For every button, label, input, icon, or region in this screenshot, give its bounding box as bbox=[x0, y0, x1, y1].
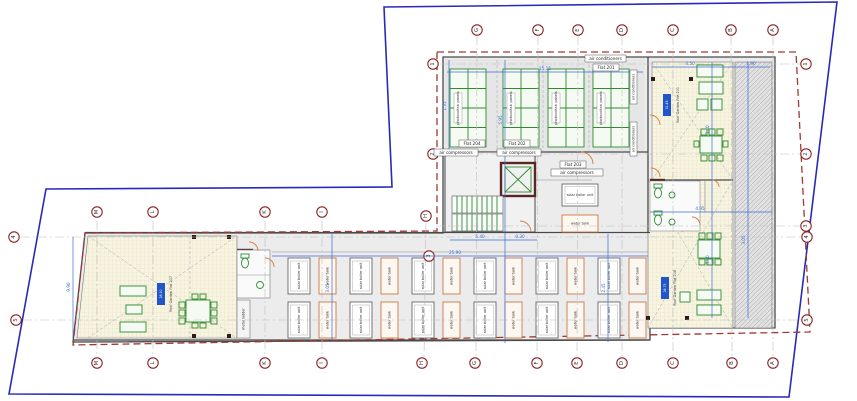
roof-garden-br-name: Roof Garden Flat 208 bbox=[673, 270, 677, 306]
grid-col-B-bottom: B bbox=[729, 361, 735, 365]
grid-col-D-bottom: D bbox=[619, 361, 625, 365]
grid-col-C-bottom: C bbox=[670, 361, 676, 365]
grid-col-H-bottom: H bbox=[419, 361, 425, 365]
dim-v-strip: 3.05 bbox=[741, 235, 746, 245]
dim-v-core: 5.95 bbox=[498, 115, 503, 125]
grid-col-L-bottom: L bbox=[150, 361, 156, 364]
grid-col-F-bottom: F bbox=[534, 361, 540, 364]
svg-text:28.10: 28.10 bbox=[159, 290, 163, 299]
wc-top-right bbox=[650, 181, 700, 231]
dim-v-wing-1: 3.05 bbox=[325, 283, 330, 293]
dim-v-wing-2: 2.45 bbox=[601, 283, 606, 293]
metal-ladder-label: metal ladder bbox=[242, 308, 246, 330]
grid-col-M-bottom: M bbox=[94, 360, 100, 365]
air-conditioners-label-side-2: air conditioners bbox=[632, 126, 636, 153]
grid-row-5-right: 5 bbox=[804, 318, 810, 321]
grid-row-1-right: 1 bbox=[803, 62, 809, 65]
grid-col-L: L bbox=[150, 210, 156, 213]
air-compressors-label-3: air compressors bbox=[560, 170, 593, 175]
floor-plan-canvas: photovoltaic panels solar boiler unit wa… bbox=[0, 0, 857, 401]
stair-core bbox=[445, 152, 535, 232]
air-compressors-label-2: air compressors bbox=[502, 150, 535, 155]
grid-col-A-bottom: A bbox=[770, 361, 776, 365]
grid-col-K: K bbox=[262, 210, 268, 214]
dim-stair-2: 0.30 bbox=[515, 234, 525, 239]
grid-col-A: A bbox=[770, 28, 776, 32]
hatched-strip bbox=[735, 62, 772, 328]
dim-v-garden-1: 3.40 bbox=[705, 125, 710, 135]
flat-201-label: Flat 201 bbox=[597, 65, 614, 70]
grid-row-3-right: 3 bbox=[803, 224, 809, 227]
dim-right-wing: 4.95 bbox=[695, 206, 705, 211]
roof-garden-bl-name: Roof Garden Flat 207 bbox=[169, 276, 173, 312]
grid-row-4-right: 4 bbox=[804, 235, 810, 239]
grid-row-2-right: 2 bbox=[803, 152, 809, 155]
dim-v-pv: 1.35 bbox=[442, 101, 447, 111]
air-conditioners-label-side-1: air conditioners bbox=[632, 74, 636, 101]
grid-col-F: F bbox=[535, 28, 541, 31]
dim-stair-1: 5.40 bbox=[475, 234, 485, 239]
grid-row-4-far-left: 4 bbox=[11, 235, 17, 239]
grid-col-D: D bbox=[619, 28, 625, 32]
dim-v-garden-2: 4.40 bbox=[705, 255, 710, 265]
flat-203-label: Flat 203 bbox=[564, 162, 581, 167]
grid-col-C: C bbox=[670, 28, 676, 32]
svg-text:31.45: 31.45 bbox=[665, 101, 669, 110]
grid-row-1-left: 1 bbox=[430, 62, 436, 65]
ladder-room: metal ladder bbox=[237, 300, 250, 338]
grid-col-M: M bbox=[94, 209, 100, 214]
dim-top: 15.15 bbox=[539, 66, 551, 71]
grid-col-B: B bbox=[728, 28, 734, 32]
grid-col-G: G bbox=[474, 28, 480, 32]
flat-202-label: Flat 202 bbox=[508, 141, 525, 146]
svg-text:26.75: 26.75 bbox=[663, 284, 667, 293]
grid-col-K-bottom: K bbox=[262, 361, 268, 365]
grid-row-5-far-left: 5 bbox=[13, 318, 19, 321]
air-conditioners-label-top: air conditioners bbox=[589, 56, 622, 61]
grid-col-E: E bbox=[575, 28, 581, 32]
dim-garden-1: 4.50 bbox=[685, 61, 695, 66]
dim-v-left-garden: 9.90 bbox=[66, 282, 71, 292]
flat-204-label: Flat 204 bbox=[463, 141, 480, 146]
air-compressors-label-1: air compressors bbox=[439, 150, 472, 155]
grid-col-H: H bbox=[423, 214, 429, 218]
roof-garden-tr-name: Roof Garden Flat 201 bbox=[676, 87, 680, 123]
grid-col-E-bottom: E bbox=[574, 361, 580, 365]
roof-plan-drawing: photovoltaic panels solar boiler unit wa… bbox=[0, 0, 857, 401]
grid-col-G-bottom: G bbox=[472, 361, 478, 365]
dim-corridor: 25.90 bbox=[449, 250, 461, 255]
